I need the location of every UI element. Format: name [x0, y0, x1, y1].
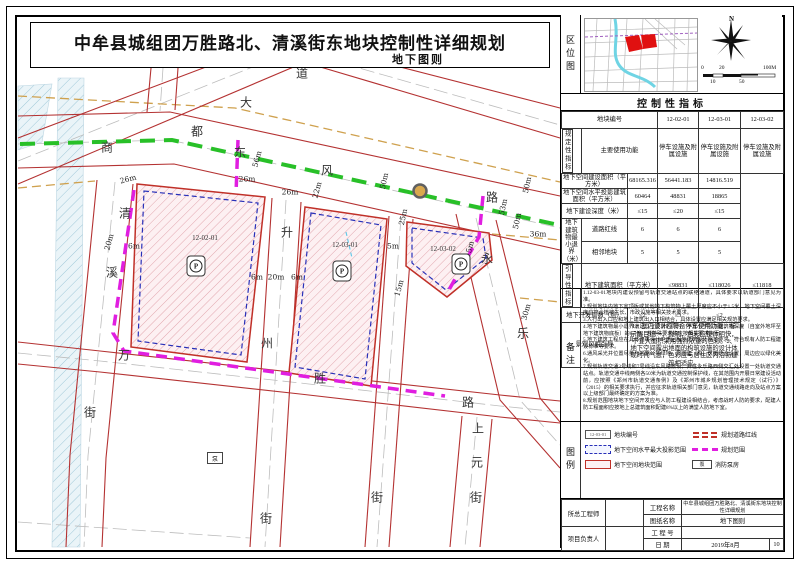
cell: 停车设施及附属设施 — [741, 129, 784, 174]
plot-no-label: 地块编号 — [562, 112, 658, 129]
plot-id: 12-02-01 — [658, 112, 699, 129]
date-value: 2019年8月 — [682, 539, 770, 551]
scale-50: 50 — [739, 79, 745, 85]
north-label: N — [729, 15, 734, 23]
cell: 6 — [699, 219, 741, 241]
project-number-value — [682, 527, 784, 539]
legend-column-left: 12-03-01地块编号地下空间水平最大投影范围地下空间地块范围 — [585, 430, 686, 469]
cell: 停车设施及附属设施 — [658, 129, 699, 174]
indicators-table-section: 地块编号 12-02-01 12-03-01 12-03-02 规定性指标 主要… — [561, 111, 783, 289]
legend-item: 12-03-01地块编号 — [585, 430, 686, 439]
date-label: 日 期 — [644, 539, 682, 551]
project-name-label: 工程名称 — [644, 500, 682, 515]
magdash-symbol — [692, 448, 718, 451]
cell: ≤20 — [658, 204, 699, 219]
legend-item-label: 地下空间水平最大投影范围 — [614, 445, 686, 454]
redbox-symbol — [585, 460, 611, 469]
cell: 14816.519 — [699, 173, 741, 188]
cell: 5 — [699, 241, 741, 263]
pump-symbol: 泵 — [692, 460, 712, 469]
note-item: 6.通风采光井位置尽量与地面公共绿地、周围建（构）筑物结合设置，周边应以绿化美化… — [583, 351, 781, 365]
project-name-value: 中牟县城组团万胜路北、清溪街东地块控制性详细规划 — [682, 500, 784, 515]
sheet-title: 中牟县城组团万胜路北、清溪街东地块控制性详细规划 — [31, 29, 549, 54]
row-label: 地下空间建设面积（平方米） — [562, 173, 628, 188]
cell: 5 — [658, 241, 699, 263]
scale-100: 100M — [763, 65, 776, 71]
legend-item-label: 地下空间地块范围 — [614, 460, 662, 469]
legend-item-label: 消防泵房 — [715, 460, 739, 469]
project-number-label: 工 程 号 — [644, 527, 682, 539]
location-inset-map — [584, 18, 698, 92]
cell: 48831 — [658, 188, 699, 203]
cell: 60464 — [628, 188, 658, 203]
regulatory-label: 规定性指标 — [562, 129, 573, 173]
scale-10: 10 — [710, 79, 716, 85]
legend-item: 泵消防泵房 — [692, 460, 757, 469]
notes-section: 备注 1.12-03-01地块内建设预留与轨道交通站点的联络通道，具体要求以轨道… — [561, 289, 783, 422]
drawing-name-value: 地下图则 — [682, 515, 784, 527]
cell: 18865 — [699, 188, 741, 203]
legend-column-right: 规划道路红线规划范围泵消防泵房 — [692, 430, 757, 469]
note-item: 5.地下建筑工程应在具体建筑设计中满足相应建筑设计规范要求，符合现有人防工程建设… — [583, 337, 781, 351]
project-manager-label: 项目负责人 — [562, 527, 606, 551]
legend-item-label: 规划道路红线 — [721, 430, 757, 439]
chief-signature-cell — [606, 500, 644, 527]
legend-item: 规划范围 — [692, 445, 757, 454]
row-label: 地下空间水平投影建筑面积（平方米） — [562, 188, 628, 203]
title-box: 中牟县城组团万胜路北、清溪街东地块控制性详细规划 地下图则 — [30, 22, 550, 68]
sheet-number: 10 — [770, 539, 784, 551]
chief-engineer-label: 所总工程师 — [562, 500, 606, 527]
plotno-symbol: 12-03-01 — [585, 430, 611, 439]
title-block: 所总工程师 工程名称 中牟县城组团万胜路北、清溪街东地块控制性详细规划 图纸名称… — [561, 499, 783, 548]
bluedash-symbol — [585, 445, 611, 454]
cell: 68165.316 — [628, 173, 658, 188]
note-item: 8.规划范围地块地下空间开发应与人防工程建设相结合，考虑战时人防的要求，配建人防… — [583, 398, 781, 412]
location-label: 区位图 — [561, 15, 581, 93]
cell: 5 — [628, 241, 658, 263]
row-label: 主要使用功能 — [582, 129, 658, 174]
cell: 6 — [628, 219, 658, 241]
roadline-symbol — [692, 430, 718, 439]
cell: ≤15 — [628, 204, 658, 219]
right-panel: 区位图 — [560, 15, 782, 548]
legend-item: 规划道路红线 — [692, 430, 757, 439]
scale-0: 0 — [701, 65, 704, 71]
title-block-table: 所总工程师 工程名称 中牟县城组团万胜路北、清溪街东地块控制性详细规划 图纸名称… — [561, 499, 784, 551]
scale-20: 20 — [719, 65, 725, 71]
cell: 停车设施及附属设施 — [699, 129, 741, 174]
scale-bar: 0 20 100M 10 50 — [701, 65, 779, 87]
note-item: 4.地下建筑物最小退界满足以上要求的同时，不宜小于地下建筑物深度（自室外地坪至地… — [583, 324, 781, 338]
legend-item: 地下空间地块范围 — [585, 460, 686, 469]
legend-item-label: 规划范围 — [721, 445, 745, 454]
cell: ≤15 — [699, 204, 741, 219]
legend-item: 地下空间水平最大投影范围 — [585, 445, 686, 454]
row-label: 相邻地块 — [582, 241, 628, 263]
drawing-name-label: 图纸名称 — [644, 515, 682, 527]
legend-body: 12-03-01地块编号地下空间水平最大投影范围地下空间地块范围规划道路红线规划… — [585, 430, 781, 469]
note-item: 1.12-03-01地块内建设预留与轨道交通站点的联络通道，具体要求以轨道部门意… — [583, 290, 781, 304]
plot-id: 12-03-01 — [699, 112, 741, 129]
plan-sheet: { "title": { "main": "中牟县城组团万胜路北、清溪街东地块控… — [0, 0, 800, 565]
pm-signature-cell — [606, 527, 644, 551]
legend-section: 图例 12-03-01地块编号地下空间水平最大投影范围地下空间地块范围规划道路红… — [561, 422, 783, 499]
note-item: 2.规划地块内地下室顶板或其他地下构筑物上覆土厚度应不小于1.5米，地下空间覆土… — [583, 304, 781, 318]
indicators-title: 控制性指标 — [561, 94, 783, 111]
cell: 56441.183 — [658, 173, 699, 188]
cell: 6 — [658, 219, 699, 241]
row-label: 道路红线 — [582, 219, 628, 241]
notes-label: 备注 — [561, 289, 581, 421]
sheet-subtitle: 地下图则 — [392, 51, 444, 67]
location-section: 区位图 — [561, 15, 783, 94]
row-label: 地下建设深度（米） — [562, 204, 628, 219]
notes-body: 1.12-03-01地块内建设预留与轨道交通站点的联络通道，具体要求以轨道部门意… — [583, 290, 781, 421]
north-rose: N — [707, 17, 755, 63]
note-item: 3.人行出入口应和地上建筑出入口相结合，具体设置应满足相关规范要求。 — [583, 317, 781, 324]
plot-id: 12-03-02 — [741, 112, 784, 129]
setback-label: 地下建筑物最小退界（米） — [562, 219, 582, 263]
legend-item-label: 地块编号 — [614, 430, 638, 439]
note-item: 7.规划轨道交通3号线和7号线沿东风路敷设，并在永乐路西侧交汇处设置一处轨道交通… — [583, 364, 781, 398]
legend-label: 图例 — [561, 422, 581, 498]
